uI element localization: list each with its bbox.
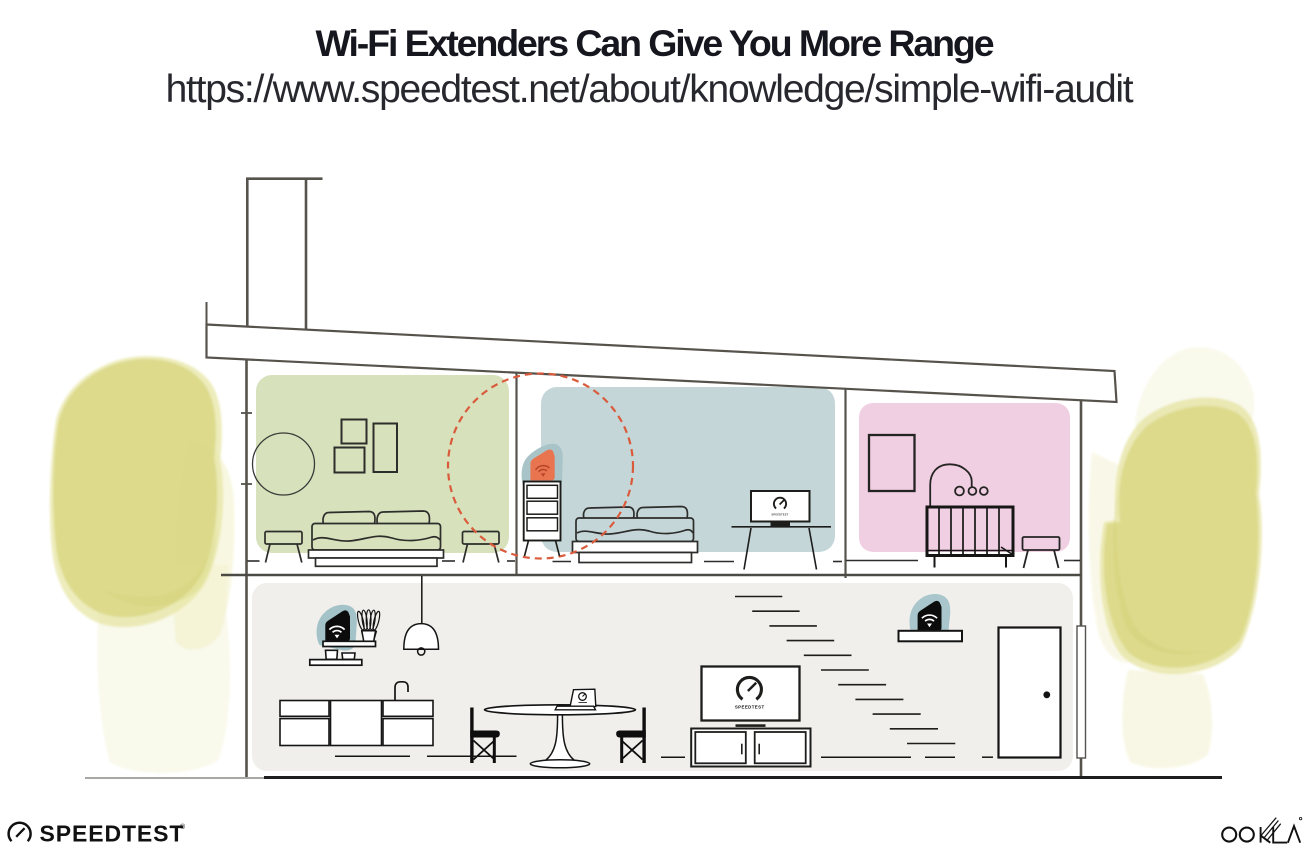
svg-text:SPEEDTEST: SPEEDTEST [772, 513, 789, 516]
svg-text:SPEEDTEST: SPEEDTEST [40, 821, 185, 847]
svg-text:®: ® [180, 823, 186, 831]
svg-text:SPEEDTEST: SPEEDTEST [735, 704, 765, 709]
